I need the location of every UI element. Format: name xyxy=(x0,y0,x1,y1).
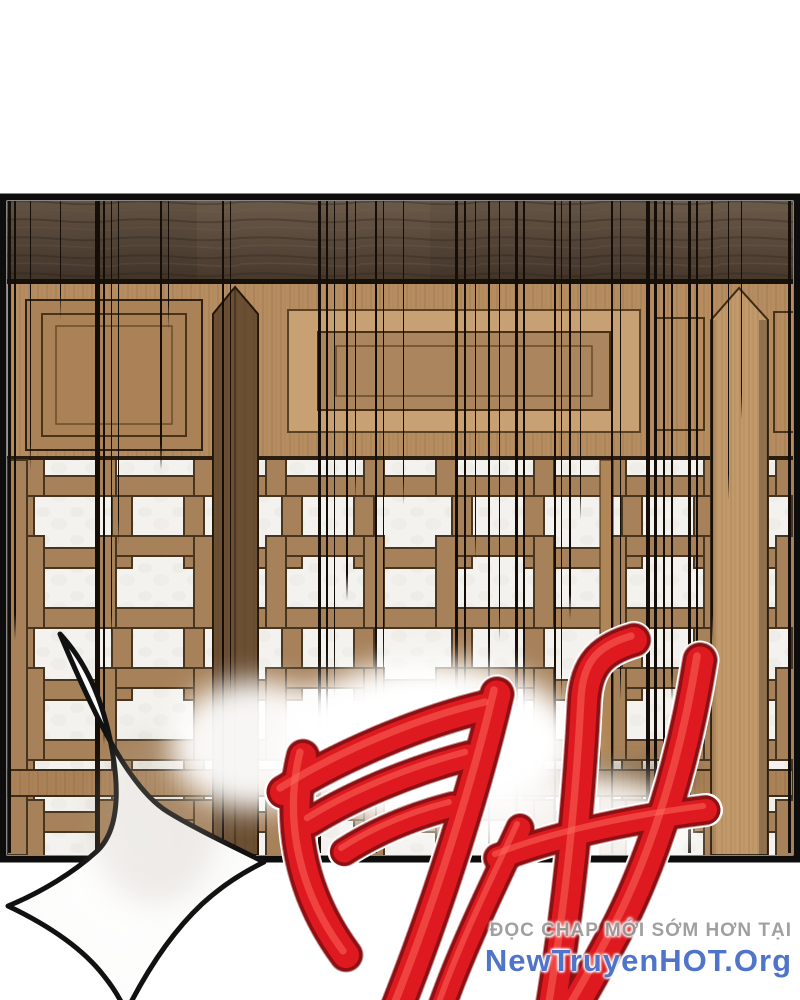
recessed-panel-left xyxy=(26,300,202,450)
speed-line xyxy=(711,201,713,614)
speed-line xyxy=(118,201,119,519)
speed-line xyxy=(671,201,673,674)
speed-line xyxy=(14,201,16,614)
speed-line xyxy=(168,201,169,304)
speed-line xyxy=(561,201,562,674)
speed-line xyxy=(663,201,665,754)
comic-page: ĐỌC CHAP MỚI SỚM HƠN TẠI NewTruyenHOT.Or… xyxy=(0,0,800,1000)
speed-line xyxy=(60,201,61,294)
wood-beam xyxy=(7,201,793,284)
speed-line xyxy=(326,201,328,764)
speed-line xyxy=(569,201,571,594)
speed-line xyxy=(580,201,581,494)
speed-line xyxy=(741,201,742,394)
speed-line xyxy=(230,201,231,674)
door-post xyxy=(711,288,768,855)
speed-line xyxy=(111,201,112,614)
speed-line xyxy=(383,201,384,719)
speed-line xyxy=(160,201,162,444)
speed-line xyxy=(355,201,356,474)
speed-line xyxy=(728,201,729,474)
speed-line xyxy=(646,201,650,853)
speed-line xyxy=(334,201,335,674)
speed-line xyxy=(103,201,105,719)
speed-line xyxy=(620,201,621,674)
watermark: ĐỌC CHAP MỚI SỚM HƠN TẠI NewTruyenHOT.Or… xyxy=(485,920,792,979)
speed-line xyxy=(346,201,348,574)
watermark-line1: ĐỌC CHAP MỚI SỚM HƠN TẠI xyxy=(485,920,792,942)
speed-line xyxy=(30,201,31,444)
speed-line xyxy=(523,201,525,734)
speed-line xyxy=(475,201,476,534)
speed-line xyxy=(95,201,100,853)
speed-line xyxy=(8,201,11,853)
speed-line xyxy=(464,201,466,674)
speed-line xyxy=(403,201,404,479)
panel-art xyxy=(0,0,800,1000)
speed-line xyxy=(499,201,500,614)
speed-line xyxy=(654,201,657,853)
watermark-line2: NewTruyenHOT.Org xyxy=(485,943,792,979)
speed-line xyxy=(788,201,791,853)
speed-line xyxy=(611,201,613,853)
